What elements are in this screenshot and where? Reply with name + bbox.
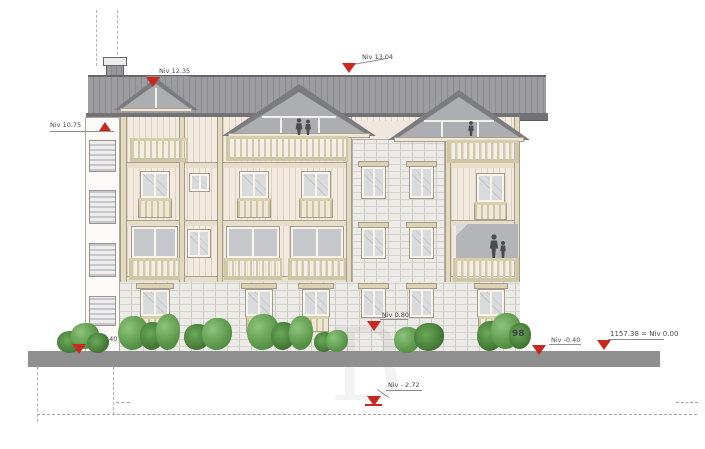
window [302, 172, 330, 198]
reference-number: 98 [512, 330, 525, 339]
projection-line [96, 10, 97, 66]
stair-window [89, 140, 116, 172]
window [410, 167, 433, 198]
bush [314, 330, 348, 354]
stone-lintel [136, 283, 174, 289]
window [188, 230, 210, 257]
window [141, 172, 169, 198]
gable-mullion [280, 116, 282, 134]
level-marker-stone-mid [367, 321, 381, 331]
level-marker-small-gable [146, 77, 160, 87]
basement-outline [37, 414, 697, 415]
stair-window [89, 243, 116, 277]
leader-line [549, 344, 581, 345]
basement-marker-bar [365, 404, 382, 406]
balcony-railing [129, 258, 180, 280]
level-marker-ground-left [72, 344, 86, 354]
window [477, 174, 504, 202]
window [410, 228, 433, 258]
leader-line [386, 390, 422, 391]
level-marker-datum [597, 340, 611, 350]
gable-mullion [318, 116, 320, 134]
stair-window [89, 296, 116, 326]
small-window [190, 174, 209, 191]
stair-window [89, 190, 116, 224]
level-label-stone-mid: Niv 0.80 [382, 312, 409, 319]
people-silhouette [292, 118, 316, 135]
elevation-drawing: B Niv 12.35 Niv 13.04 [0, 0, 705, 449]
stone-lintel [474, 283, 508, 289]
bush [118, 312, 180, 352]
people-silhouette [486, 234, 510, 258]
window [362, 167, 385, 198]
window-balustrade [299, 198, 333, 218]
small-gable-base [120, 108, 192, 112]
window-balustrade [237, 198, 271, 218]
bush [247, 312, 313, 352]
datum-label: 1157.38 = Niv 0.00 [610, 331, 678, 338]
leader-line [608, 339, 664, 340]
window-balustrade [138, 198, 172, 218]
floor-band [120, 162, 352, 168]
level-label-small-gable: Niv 12.35 [159, 68, 190, 75]
leader-line [380, 319, 408, 320]
window-wide [132, 227, 177, 258]
basement-outline [116, 402, 130, 403]
stone-lintel [298, 283, 334, 289]
window [410, 289, 433, 317]
bush [394, 323, 446, 353]
balcony-railing [226, 136, 348, 161]
level-label-ground-right: Niv -0.40 [551, 337, 580, 344]
level-marker-ridge [342, 63, 356, 73]
level-marker-ground-right [532, 345, 546, 355]
window-wide [227, 227, 279, 258]
stone-lintel [241, 283, 277, 289]
corner-post [120, 117, 127, 282]
floor-band [120, 220, 352, 226]
bush [184, 318, 234, 352]
balcony-railing [447, 140, 519, 163]
balcony-railing [224, 258, 282, 280]
window [240, 172, 268, 198]
level-marker-eave [99, 122, 111, 131]
person-silhouette [465, 121, 481, 136]
leader-line [50, 131, 114, 132]
projection-line [117, 10, 118, 60]
basement-outline [113, 367, 114, 415]
level-label-basement: Niv - 2.72 [388, 382, 419, 389]
basement-outline [676, 402, 698, 403]
post [217, 117, 223, 282]
window-wide [291, 227, 343, 258]
level-label-eave: Niv 10.75 [50, 122, 81, 129]
gable-transom [424, 120, 494, 122]
balcony-railing [453, 258, 519, 282]
window [362, 228, 385, 258]
gable-mullion [155, 88, 157, 110]
balcony-railing [288, 258, 346, 280]
balcony-railing [130, 138, 188, 162]
window-balustrade [474, 202, 507, 220]
